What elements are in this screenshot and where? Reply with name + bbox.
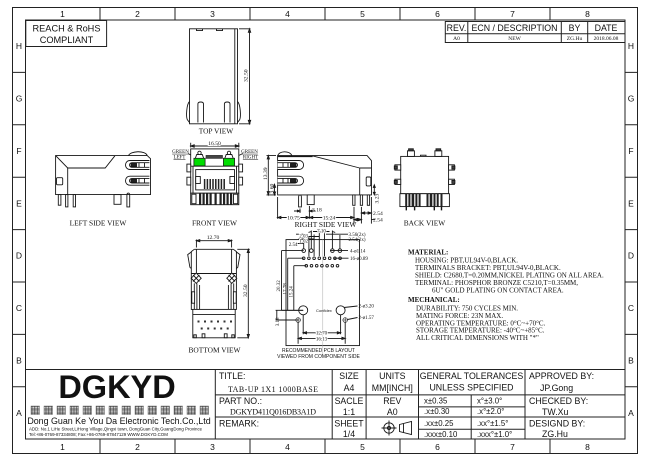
svg-text:3.18: 3.18 — [312, 207, 322, 213]
svg-text:SACLE: SACLE — [335, 396, 364, 406]
svg-text:ZG.Hu: ZG.Hu — [542, 429, 568, 439]
svg-text:GENERAL TOLERANCES: GENERAL TOLERANCES — [420, 371, 524, 381]
svg-text:A4: A4 — [344, 383, 355, 393]
svg-text:ECN / DESCRIPTION: ECN / DESCRIPTION — [471, 23, 557, 33]
svg-text:16-ø0.89: 16-ø0.89 — [350, 257, 368, 262]
svg-text:PART NO.:: PART NO.: — [219, 396, 262, 406]
svg-text:1: 1 — [60, 9, 65, 19]
svg-text:2018.06.08: 2018.06.08 — [594, 36, 619, 42]
svg-text:FRONT VIEW: FRONT VIEW — [192, 218, 237, 227]
svg-text:Confidex: Confidex — [316, 308, 332, 313]
svg-text:MECHANICAL:: MECHANICAL: — [408, 296, 460, 304]
svg-text:SIZE: SIZE — [339, 371, 359, 381]
svg-text:BY: BY — [569, 23, 581, 33]
svg-text:LEFT SIDE VIEW: LEFT SIDE VIEW — [70, 218, 127, 227]
svg-text:2.54: 2.54 — [289, 243, 298, 248]
svg-text:7: 7 — [510, 442, 515, 452]
svg-text:3: 3 — [210, 9, 215, 19]
svg-text:2: 2 — [135, 442, 140, 452]
svg-text:17.78: 17.78 — [283, 283, 288, 295]
svg-text:2-ø3.20: 2-ø3.20 — [359, 305, 375, 310]
svg-text:2.54: 2.54 — [373, 211, 383, 217]
svg-text:6: 6 — [435, 442, 440, 452]
svg-text:15.24: 15.24 — [290, 286, 295, 298]
svg-text:1/4: 1/4 — [343, 429, 355, 439]
svg-text:DGKYD411Q016DB3A1D: DGKYD411Q016DB3A1D — [230, 408, 316, 417]
svg-text:2-ø1.57: 2-ø1.57 — [359, 316, 375, 321]
svg-text:TITLE:: TITLE: — [219, 371, 245, 381]
svg-text:ADD: No.1 LiHe Street,LiHong V: ADD: No.1 LiHe Street,LiHong Village,Qin… — [29, 427, 203, 432]
svg-text:MATERIAL:: MATERIAL: — [408, 249, 448, 257]
svg-text:REV.: REV. — [447, 23, 467, 33]
svg-text:A: A — [628, 408, 634, 418]
svg-text:B: B — [16, 356, 22, 366]
svg-text:2.54(2x): 2.54(2x) — [349, 238, 366, 243]
svg-text:A: A — [16, 408, 22, 418]
svg-text:3.23: 3.23 — [374, 194, 380, 204]
svg-text:COMPLIANT: COMPLIANT — [40, 35, 94, 45]
svg-text:1: 1 — [60, 442, 65, 452]
svg-text:G: G — [16, 94, 23, 104]
svg-text:2.54: 2.54 — [373, 218, 383, 224]
svg-text:8: 8 — [585, 9, 590, 19]
svg-text:UNITS: UNITS — [379, 371, 406, 381]
svg-text:12.70: 12.70 — [207, 235, 220, 241]
svg-text:ALL CRITICAL DIMENSIONS WITH ": ALL CRITICAL DIMENSIONS WITH "*" — [416, 334, 539, 342]
svg-text:DESIGND BY:: DESIGND BY: — [529, 419, 585, 429]
svg-text:3: 3 — [210, 442, 215, 452]
svg-text:RIGHT: RIGHT — [243, 155, 258, 160]
svg-text:Dong Guan Ke You Da Electronic: Dong Guan Ke You Da Electronic Tech.Co.,… — [27, 416, 210, 426]
svg-text:GREEN: GREEN — [172, 150, 189, 155]
svg-text:7: 7 — [510, 9, 515, 19]
svg-text:RIGHT SIDE VIEW: RIGHT SIDE VIEW — [295, 220, 357, 229]
svg-text:SHEET: SHEET — [334, 419, 364, 429]
svg-text:16.13: 16.13 — [316, 337, 328, 342]
svg-text:4-ø1.14: 4-ø1.14 — [350, 250, 366, 255]
svg-text:4: 4 — [285, 442, 290, 452]
svg-text:x±0.35: x±0.35 — [424, 397, 448, 406]
svg-text:Tel:+86-0769-87334808; Fax:+86: Tel:+86-0769-87334808; Fax:+86-0769-8784… — [29, 432, 168, 437]
svg-text:JP.Gong: JP.Gong — [540, 383, 573, 393]
svg-text:G: G — [628, 94, 635, 104]
svg-text:A0: A0 — [453, 36, 460, 42]
svg-text:8: 8 — [585, 442, 590, 452]
svg-text:3.60: 3.60 — [269, 184, 275, 194]
svg-text:VIEWED FROM COMPONENT SIDE: VIEWED FROM COMPONENT SIDE — [277, 354, 360, 360]
svg-text:H: H — [16, 41, 22, 51]
svg-text:.x±0.30: .x±0.30 — [424, 407, 450, 416]
svg-text:E: E — [16, 199, 22, 209]
svg-text:13.39: 13.39 — [263, 167, 269, 180]
svg-text:A0: A0 — [387, 407, 398, 417]
svg-text:C: C — [628, 303, 634, 313]
svg-text:B: B — [628, 356, 634, 366]
svg-text:REACH & RoHS: REACH & RoHS — [33, 24, 101, 34]
svg-text:x°±3.0°: x°±3.0° — [477, 397, 502, 406]
svg-text:BACK VIEW: BACK VIEW — [404, 218, 446, 227]
svg-text:UNLESS SPECIFIED: UNLESS SPECIFIED — [429, 383, 513, 393]
svg-text:NEW: NEW — [508, 36, 521, 42]
svg-text:MM[INCH]: MM[INCH] — [372, 383, 413, 393]
svg-text:F: F — [628, 146, 633, 156]
svg-text:32.50: 32.50 — [244, 69, 250, 82]
svg-text:TW.Xu: TW.Xu — [542, 407, 569, 417]
svg-text:6: 6 — [435, 9, 440, 19]
svg-text:7.10: 7.10 — [317, 229, 326, 234]
svg-text:C: C — [16, 303, 22, 313]
svg-text:16.50: 16.50 — [208, 141, 221, 147]
svg-text:DATE: DATE — [595, 23, 618, 33]
svg-text:E: E — [628, 199, 634, 209]
svg-text:D: D — [16, 251, 22, 261]
svg-text:TAB-UP 1X1 1000BASE: TAB-UP 1X1 1000BASE — [228, 385, 318, 394]
svg-text:F: F — [16, 146, 21, 156]
svg-text:D: D — [628, 251, 634, 261]
svg-text:.xx°±1.5°: .xx°±1.5° — [477, 419, 508, 428]
svg-text:1:1: 1:1 — [343, 407, 355, 417]
svg-text:20.32: 20.32 — [277, 280, 282, 292]
svg-text:H: H — [628, 41, 634, 51]
svg-text:3.18: 3.18 — [276, 317, 281, 326]
svg-text:ZG.Hu: ZG.Hu — [567, 36, 583, 42]
svg-text:4: 4 — [285, 9, 290, 19]
svg-text:APPROVED BY:: APPROVED BY: — [529, 371, 594, 381]
svg-text:5: 5 — [360, 9, 365, 19]
svg-text:GREEN: GREEN — [241, 150, 258, 155]
svg-text:32.50: 32.50 — [243, 284, 249, 297]
svg-text:LEFT: LEFT — [174, 155, 186, 160]
svg-text:12.70: 12.70 — [316, 332, 328, 337]
svg-text:.xxx±0.10: .xxx±0.10 — [424, 430, 458, 439]
svg-text:REV: REV — [383, 396, 401, 406]
svg-text:1.02: 1.02 — [299, 239, 308, 244]
svg-text:2: 2 — [135, 9, 140, 19]
svg-text:BOTTOM VIEW: BOTTOM VIEW — [188, 346, 240, 355]
svg-text:TOP VIEW: TOP VIEW — [199, 127, 234, 136]
svg-text:6U" GOLD PLATING ON CONTACT AR: 6U" GOLD PLATING ON CONTACT AREA. — [432, 287, 564, 295]
svg-text:.x°±2.0°: .x°±2.0° — [477, 407, 504, 416]
svg-text:.xxx°±1.0°: .xxx°±1.0° — [477, 430, 512, 439]
svg-text:REMARK:: REMARK: — [219, 419, 259, 429]
svg-text:5: 5 — [360, 442, 365, 452]
svg-text:DGKYD: DGKYD — [58, 369, 175, 405]
svg-text:CHECKED BY:: CHECKED BY: — [529, 396, 588, 406]
svg-text:.xx±0.25: .xx±0.25 — [424, 419, 454, 428]
